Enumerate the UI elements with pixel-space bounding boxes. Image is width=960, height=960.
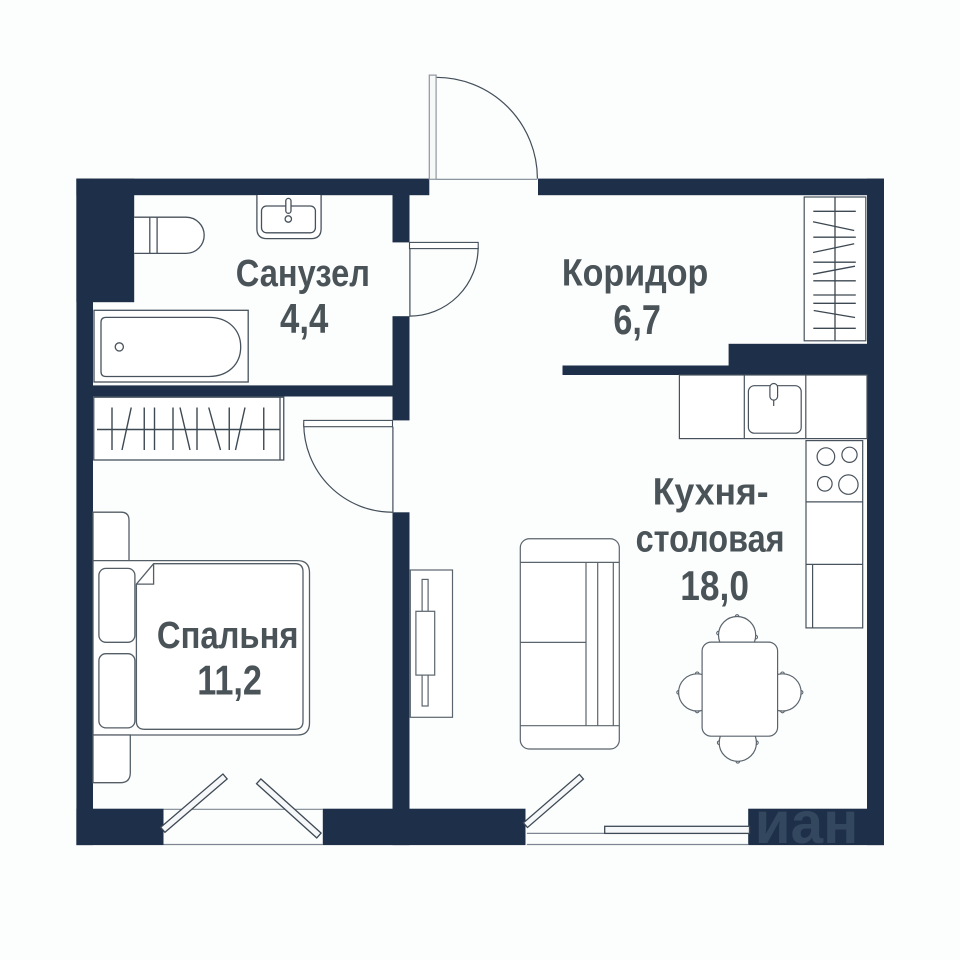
svg-text:столовая: столовая	[636, 519, 785, 561]
svg-text:Спальня: Спальня	[157, 615, 299, 657]
svg-text:6,7: 6,7	[613, 296, 661, 343]
svg-text:Кухня-: Кухня-	[653, 472, 769, 514]
svg-text:иан: иан	[755, 790, 859, 856]
svg-text:4,4: 4,4	[280, 295, 329, 342]
svg-text:11,2: 11,2	[197, 657, 262, 704]
svg-text:Санузел: Санузел	[236, 253, 370, 295]
svg-text:Коридор: Коридор	[562, 253, 709, 295]
svg-text:18,0: 18,0	[680, 562, 749, 609]
